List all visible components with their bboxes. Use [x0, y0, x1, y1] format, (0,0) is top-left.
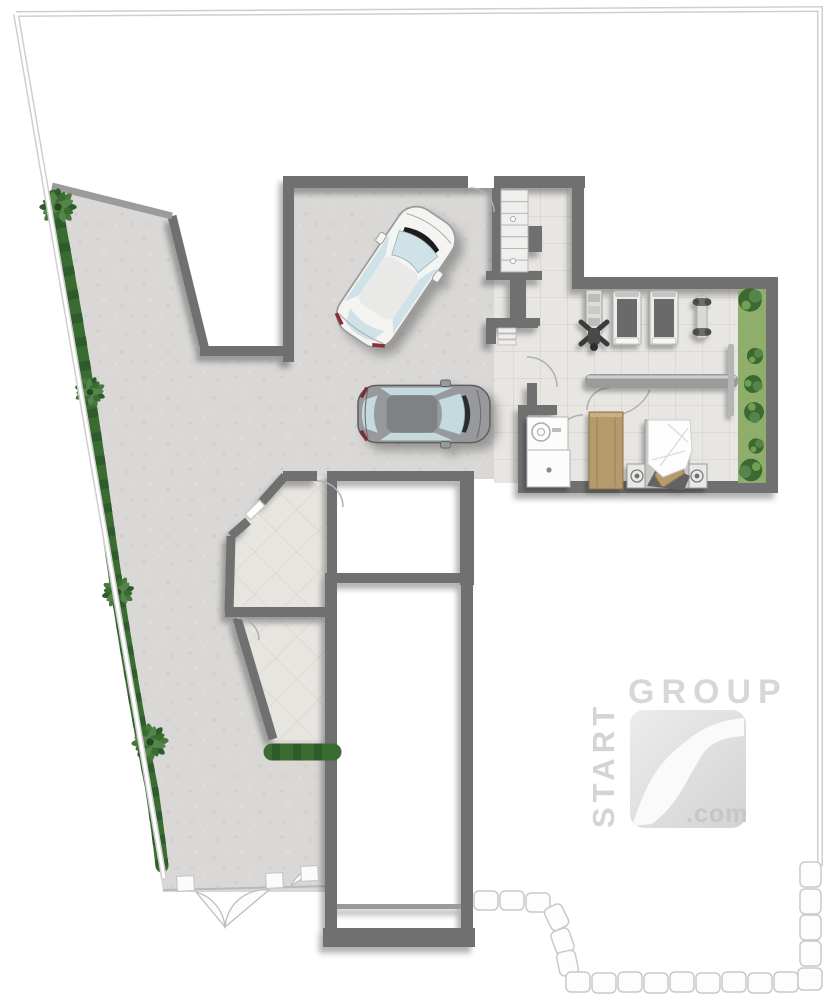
bath-top-wall	[527, 405, 557, 415]
white-blanket	[648, 420, 692, 477]
bush	[747, 348, 763, 364]
void-room-upper	[337, 481, 460, 575]
stair-post	[511, 259, 516, 264]
stone-block	[800, 862, 821, 887]
toilet-button	[546, 467, 551, 472]
logo-start-text: START	[586, 702, 621, 828]
floor-plan-canvas: GROUP START .com	[0, 0, 832, 1000]
faucet	[552, 428, 561, 432]
room-d-right-wall	[461, 573, 473, 947]
void-bottom-wall	[200, 346, 290, 356]
room-c-top-wall	[327, 471, 472, 481]
logo-group-text: GROUP	[628, 673, 788, 711]
wardrobe	[589, 412, 623, 489]
stone-block	[800, 915, 821, 940]
treadmill	[650, 291, 678, 345]
gate-post	[301, 866, 319, 882]
logo-com-text: .com	[686, 800, 748, 828]
stone-block	[800, 941, 821, 966]
gate-leaf-right	[225, 890, 269, 927]
gate-post	[177, 876, 195, 892]
treadmill	[613, 291, 641, 345]
garage-entry-door-gap	[468, 176, 494, 188]
void-room-lower	[337, 583, 461, 905]
garage-top-wall	[283, 176, 585, 188]
stone-block	[474, 891, 498, 910]
sink-counter	[527, 417, 568, 450]
room-d-bottom-wall	[323, 928, 475, 947]
room-c-bottom-wall	[327, 573, 472, 583]
stair-post	[511, 217, 516, 222]
garden-strip	[737, 288, 768, 484]
stone-block	[566, 972, 590, 992]
stone-block	[592, 973, 616, 993]
bathroom-fixtures	[527, 417, 570, 487]
stone-block	[670, 972, 694, 992]
stone-block	[500, 891, 524, 910]
stone-wall	[474, 862, 822, 993]
gym-right-wall	[766, 277, 778, 493]
grey-car	[358, 380, 490, 448]
bush	[748, 438, 763, 453]
gate-leaf-left	[196, 892, 225, 927]
stone-block	[618, 972, 642, 992]
stone-block	[644, 973, 668, 993]
garage-right-wall	[572, 176, 584, 288]
lower-stair-treads	[498, 328, 516, 345]
bush	[738, 288, 761, 311]
room-d-step-line	[337, 904, 461, 909]
stone-block	[798, 968, 822, 990]
stone-block	[722, 972, 746, 992]
stair-left-wall	[492, 183, 501, 280]
floor-plan-page: GROUP START .com	[0, 0, 832, 1000]
room-a-top-wall	[283, 471, 317, 481]
stone-block	[748, 973, 772, 993]
void-room-step	[337, 909, 461, 928]
hall-door-frame	[492, 318, 538, 328]
watermark-logo: GROUP START .com	[586, 673, 788, 828]
void-rooms	[337, 481, 461, 928]
room-c-right-wall	[460, 471, 474, 585]
gate-post	[266, 873, 284, 889]
stair-stub-wall	[510, 279, 526, 320]
stone-block	[800, 889, 821, 914]
room-a-left-wall	[229, 536, 231, 611]
stone-block	[696, 973, 720, 993]
room-divider-wall	[225, 607, 337, 617]
garage-left-wall	[283, 176, 294, 362]
stone-block	[774, 972, 798, 992]
gym-top-wall	[572, 277, 778, 289]
